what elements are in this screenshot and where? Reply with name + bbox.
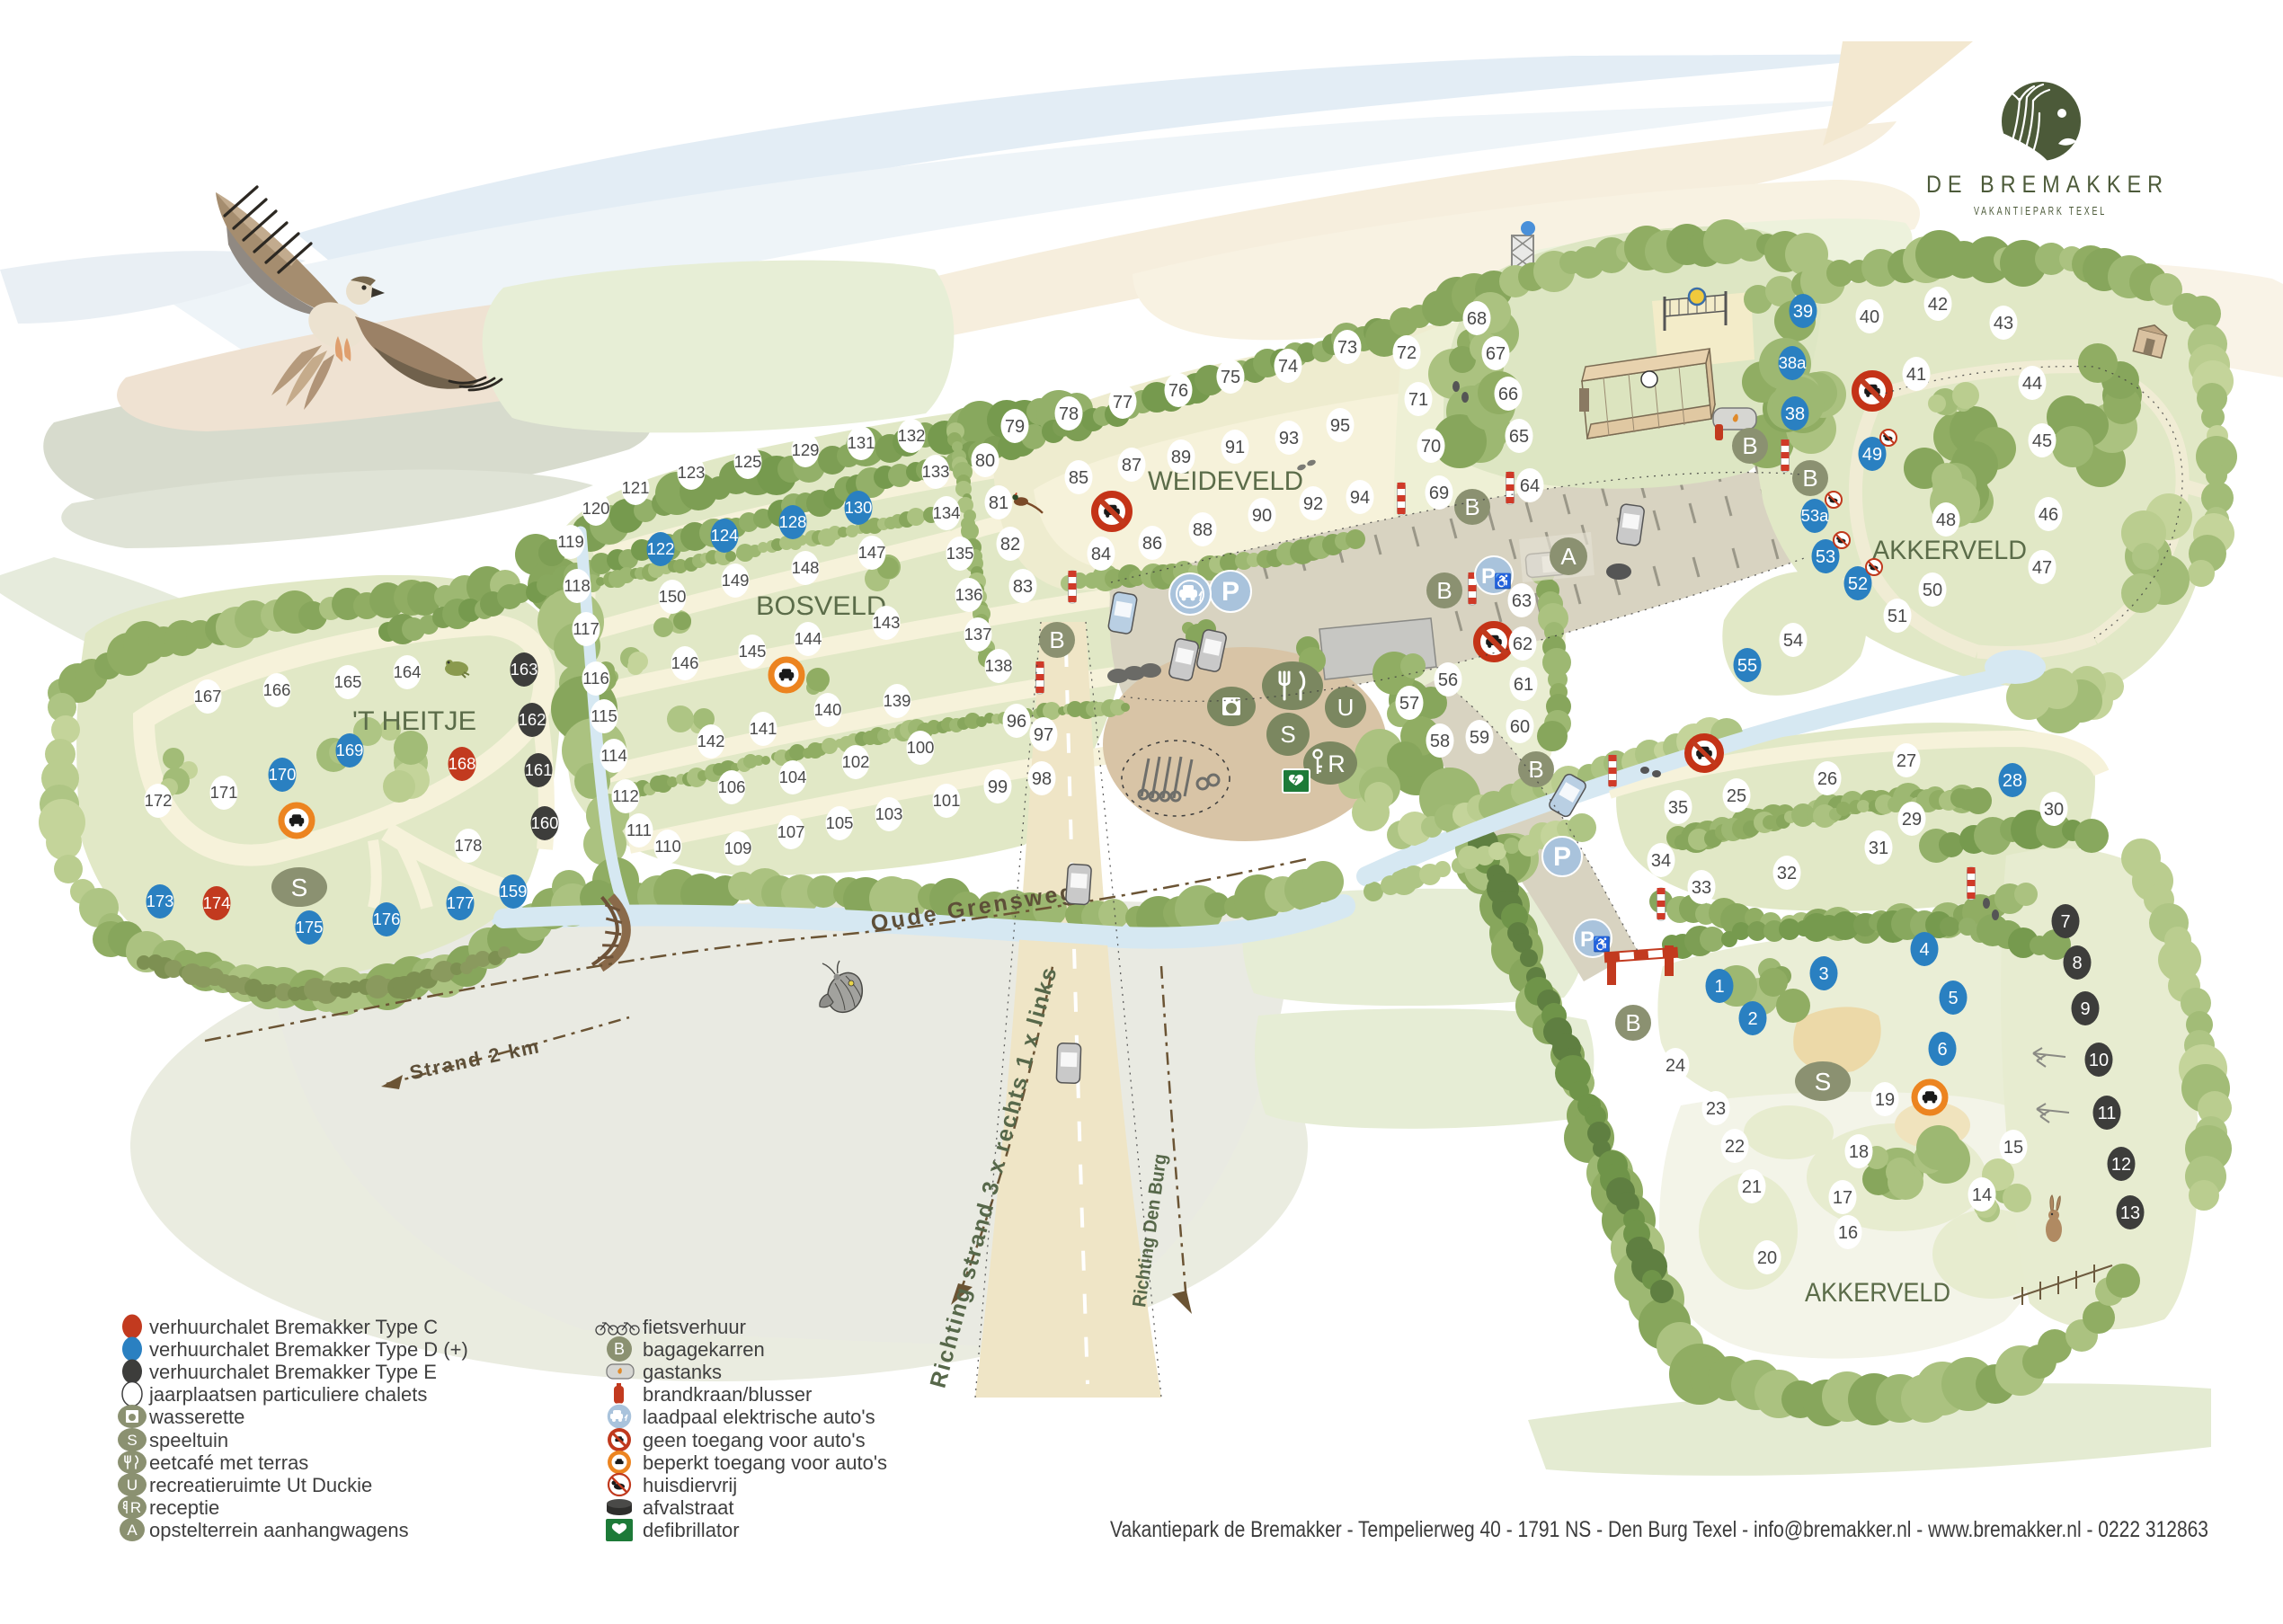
- svg-text:107: 107: [777, 822, 805, 841]
- svg-text:52: 52: [1848, 574, 1868, 594]
- svg-text:163: 163: [511, 660, 538, 679]
- svg-text:S: S: [1815, 1068, 1832, 1096]
- svg-text:106: 106: [718, 777, 746, 796]
- svg-text:103: 103: [875, 804, 903, 823]
- svg-text:46: 46: [2039, 505, 2058, 525]
- svg-text:48: 48: [1936, 510, 1956, 530]
- svg-text:eetcafé met terras: eetcafé met terras: [149, 1451, 308, 1474]
- svg-text:58: 58: [1430, 732, 1450, 751]
- svg-text:175: 175: [296, 918, 324, 936]
- svg-text:11: 11: [2098, 1104, 2117, 1123]
- svg-text:20: 20: [1757, 1248, 1777, 1268]
- svg-text:55: 55: [1737, 656, 1757, 676]
- svg-text:144: 144: [795, 629, 822, 648]
- svg-text:VAKANTIEPARK TEXEL: VAKANTIEPARK TEXEL: [1974, 204, 2107, 217]
- svg-text:132: 132: [898, 426, 926, 445]
- svg-text:28: 28: [2003, 771, 2022, 791]
- svg-text:23: 23: [1706, 1099, 1726, 1119]
- svg-text:43: 43: [1994, 314, 2013, 333]
- svg-text:71: 71: [1408, 390, 1428, 410]
- svg-text:61: 61: [1514, 675, 1533, 695]
- svg-text:B: B: [614, 1340, 625, 1358]
- svg-text:134: 134: [933, 503, 961, 522]
- svg-text:137: 137: [964, 625, 992, 643]
- svg-text:♿: ♿: [1593, 936, 1611, 953]
- svg-text:72: 72: [1397, 343, 1417, 363]
- svg-text:41: 41: [1906, 365, 1926, 385]
- svg-text:169: 169: [336, 741, 364, 759]
- svg-text:B: B: [1742, 432, 1757, 459]
- svg-text:109: 109: [724, 839, 752, 857]
- svg-text:29: 29: [1902, 810, 1922, 830]
- svg-text:145: 145: [739, 642, 767, 661]
- svg-text:44: 44: [2022, 374, 2042, 394]
- svg-text:gastanks: gastanks: [643, 1361, 722, 1383]
- svg-text:wasserette: wasserette: [148, 1406, 244, 1428]
- svg-text:171: 171: [210, 783, 238, 802]
- svg-text:BOSVELD: BOSVELD: [756, 591, 886, 621]
- svg-text:148: 148: [792, 558, 820, 577]
- svg-text:101: 101: [933, 791, 961, 810]
- svg-text:95: 95: [1330, 416, 1350, 436]
- svg-text:124: 124: [711, 526, 739, 545]
- svg-text:49: 49: [1862, 445, 1882, 465]
- svg-text:128: 128: [779, 512, 807, 531]
- svg-text:P: P: [1221, 577, 1239, 607]
- svg-text:huisdiervrij: huisdiervrij: [643, 1474, 737, 1496]
- svg-text:62: 62: [1513, 635, 1532, 654]
- svg-text:54: 54: [1783, 631, 1803, 651]
- svg-text:64: 64: [1520, 476, 1540, 496]
- svg-text:67: 67: [1486, 344, 1506, 364]
- svg-text:bagagekarren: bagagekarren: [643, 1338, 765, 1361]
- svg-text:133: 133: [922, 462, 950, 481]
- svg-text:30: 30: [2044, 800, 2064, 820]
- svg-text:AKKERVELD: AKKERVELD: [1805, 1278, 1950, 1308]
- svg-text:110: 110: [654, 837, 681, 856]
- svg-text:94: 94: [1350, 488, 1370, 508]
- svg-text:AKKERVELD: AKKERVELD: [1872, 536, 2027, 565]
- svg-text:84: 84: [1091, 545, 1111, 564]
- svg-text:177: 177: [447, 893, 475, 912]
- svg-text:77: 77: [1113, 393, 1133, 413]
- svg-text:86: 86: [1142, 534, 1162, 554]
- svg-text:17: 17: [1833, 1188, 1852, 1208]
- svg-text:32: 32: [1777, 864, 1797, 883]
- svg-text:50: 50: [1923, 581, 1942, 600]
- svg-text:brandkraan/blusser: brandkraan/blusser: [643, 1383, 812, 1406]
- svg-text:74: 74: [1278, 357, 1298, 377]
- svg-text:105: 105: [826, 813, 854, 832]
- svg-text:76: 76: [1168, 381, 1188, 401]
- svg-text:172: 172: [145, 791, 173, 810]
- svg-text:4: 4: [1919, 940, 1929, 960]
- svg-text:22: 22: [1725, 1137, 1745, 1157]
- svg-text:115: 115: [591, 706, 617, 725]
- svg-text:68: 68: [1467, 309, 1487, 329]
- svg-text:111: 111: [626, 821, 652, 839]
- svg-text:afvalstraat: afvalstraat: [643, 1496, 734, 1519]
- svg-text:160: 160: [531, 813, 559, 832]
- svg-text:19: 19: [1875, 1090, 1895, 1110]
- svg-text:S: S: [291, 874, 308, 901]
- svg-text:B: B: [1049, 626, 1064, 653]
- svg-text:speeltuin: speeltuin: [149, 1429, 228, 1451]
- svg-text:1: 1: [1714, 977, 1724, 997]
- svg-text:P: P: [1553, 842, 1571, 872]
- svg-text:159: 159: [500, 882, 528, 901]
- svg-text:9: 9: [2080, 999, 2090, 1019]
- svg-text:102: 102: [842, 752, 870, 771]
- svg-text:5: 5: [1948, 989, 1958, 1008]
- svg-text:83: 83: [1013, 577, 1033, 597]
- svg-text:U: U: [1337, 694, 1355, 721]
- svg-text:S: S: [127, 1432, 137, 1449]
- svg-text:38: 38: [1785, 404, 1805, 424]
- svg-text:26: 26: [1817, 769, 1837, 789]
- svg-text:136: 136: [955, 585, 983, 604]
- svg-text:42: 42: [1928, 295, 1948, 315]
- svg-text:A: A: [127, 1522, 138, 1539]
- svg-text:82: 82: [1000, 535, 1020, 555]
- svg-text:13: 13: [2120, 1203, 2140, 1223]
- svg-text:8: 8: [2072, 954, 2082, 973]
- svg-text:56: 56: [1438, 670, 1458, 690]
- svg-text:161: 161: [525, 760, 553, 779]
- svg-text:135: 135: [946, 544, 974, 563]
- svg-text:79: 79: [1005, 417, 1025, 437]
- svg-text:70: 70: [1421, 437, 1441, 457]
- svg-text:120: 120: [582, 499, 610, 518]
- svg-text:176: 176: [373, 910, 401, 928]
- svg-text:73: 73: [1337, 338, 1357, 358]
- svg-text:75: 75: [1221, 368, 1240, 387]
- svg-text:35: 35: [1668, 798, 1688, 818]
- svg-text:91: 91: [1225, 438, 1245, 457]
- svg-text:3: 3: [1818, 964, 1828, 984]
- svg-text:147: 147: [858, 543, 886, 562]
- svg-text:59: 59: [1470, 728, 1489, 748]
- svg-text:142: 142: [697, 732, 725, 750]
- svg-text:R: R: [1328, 750, 1346, 777]
- svg-text:31: 31: [1869, 839, 1888, 858]
- svg-text:2: 2: [1747, 1009, 1757, 1029]
- svg-text:117: 117: [573, 619, 600, 638]
- svg-text:131: 131: [848, 433, 875, 452]
- svg-text:60: 60: [1510, 717, 1530, 737]
- svg-text:10: 10: [2089, 1051, 2109, 1070]
- svg-text:beperkt toegang voor auto's: beperkt toegang voor auto's: [643, 1451, 887, 1474]
- svg-text:122: 122: [647, 539, 675, 558]
- svg-text:118: 118: [564, 576, 591, 595]
- svg-text:114: 114: [600, 746, 627, 765]
- svg-text:15: 15: [2003, 1138, 2023, 1158]
- svg-text:defibrillator: defibrillator: [643, 1519, 740, 1541]
- svg-text:164: 164: [394, 662, 422, 681]
- svg-text:A: A: [1560, 543, 1577, 570]
- svg-text:100: 100: [907, 738, 935, 757]
- svg-text:6: 6: [1937, 1040, 1947, 1060]
- svg-text:130: 130: [845, 498, 873, 517]
- svg-text:125: 125: [734, 452, 762, 471]
- svg-text:165: 165: [334, 672, 362, 691]
- svg-text:116: 116: [582, 669, 609, 688]
- svg-text:80: 80: [975, 451, 995, 471]
- svg-text:geen toegang voor auto's: geen toegang voor auto's: [643, 1429, 866, 1451]
- svg-text:138: 138: [985, 656, 1013, 675]
- svg-text:123: 123: [678, 463, 706, 482]
- svg-text:39: 39: [1793, 302, 1813, 322]
- svg-text:99: 99: [988, 777, 1008, 797]
- svg-text:87: 87: [1122, 456, 1141, 475]
- svg-text:104: 104: [779, 768, 807, 786]
- svg-text:verhuurchalet Bremakker Type E: verhuurchalet Bremakker Type E: [149, 1361, 437, 1383]
- svg-text:53: 53: [1816, 547, 1835, 567]
- svg-text:receptie: receptie: [149, 1496, 219, 1519]
- svg-text:18: 18: [1849, 1142, 1869, 1162]
- svg-text:89: 89: [1171, 448, 1191, 467]
- svg-text:33: 33: [1692, 878, 1711, 898]
- svg-text:119: 119: [557, 532, 584, 551]
- svg-text:S: S: [1280, 721, 1295, 748]
- svg-text:B: B: [1436, 577, 1452, 604]
- svg-text:166: 166: [263, 680, 291, 699]
- svg-text:12: 12: [2111, 1155, 2131, 1175]
- svg-text:fietsverhuur: fietsverhuur: [643, 1316, 746, 1338]
- svg-text:B: B: [1464, 493, 1479, 520]
- svg-text:121: 121: [622, 478, 650, 497]
- svg-text:85: 85: [1069, 468, 1088, 488]
- svg-text:146: 146: [671, 653, 699, 672]
- svg-text:143: 143: [873, 613, 901, 632]
- svg-text:21: 21: [1742, 1177, 1762, 1197]
- svg-text:DE BREMAKKER: DE BREMAKKER: [1926, 171, 2169, 198]
- svg-text:B: B: [1625, 1009, 1640, 1036]
- svg-text:24: 24: [1666, 1056, 1685, 1076]
- svg-text:88: 88: [1193, 520, 1213, 540]
- svg-text:139: 139: [884, 691, 911, 710]
- svg-text:170: 170: [269, 765, 297, 784]
- svg-text:92: 92: [1303, 494, 1323, 514]
- svg-text:U: U: [127, 1477, 138, 1494]
- svg-text:96: 96: [1007, 712, 1026, 732]
- svg-text:149: 149: [722, 571, 750, 590]
- svg-text:38a: 38a: [1779, 353, 1808, 372]
- svg-text:opstelterrein aanhangwagens: opstelterrein aanhangwagens: [149, 1519, 409, 1541]
- svg-text:150: 150: [659, 587, 687, 606]
- svg-text:112: 112: [612, 786, 639, 805]
- svg-text:66: 66: [1498, 385, 1518, 404]
- svg-text:Vakantiepark de Bremakker - Te: Vakantiepark de Bremakker - Tempelierweg…: [1110, 1517, 2208, 1542]
- svg-text:verhuurchalet Bremakker Type D: verhuurchalet Bremakker Type D (+): [149, 1338, 468, 1361]
- svg-text:R: R: [130, 1499, 141, 1516]
- svg-text:25: 25: [1727, 786, 1746, 806]
- svg-text:78: 78: [1059, 404, 1079, 424]
- svg-text:'T HEITJE: 'T HEITJE: [352, 706, 476, 736]
- svg-text:B: B: [1528, 756, 1543, 783]
- svg-text:51: 51: [1888, 607, 1907, 626]
- svg-text:129: 129: [792, 440, 820, 459]
- svg-text:168: 168: [449, 754, 476, 773]
- svg-text:140: 140: [814, 700, 842, 719]
- svg-text:laadpaal elektrische auto's: laadpaal elektrische auto's: [643, 1406, 875, 1428]
- svg-text:45: 45: [2032, 431, 2052, 451]
- svg-text:♿: ♿: [1494, 572, 1512, 590]
- svg-text:90: 90: [1252, 506, 1272, 526]
- svg-text:7: 7: [2060, 912, 2070, 932]
- svg-text:178: 178: [455, 836, 483, 855]
- svg-text:B: B: [1802, 465, 1817, 492]
- svg-text:jaarplaatsen particuliere chal: jaarplaatsen particuliere chalets: [148, 1383, 427, 1406]
- svg-text:14: 14: [1972, 1185, 1992, 1205]
- svg-text:141: 141: [750, 719, 777, 738]
- svg-text:verhuurchalet Bremakker Type C: verhuurchalet Bremakker Type C: [149, 1316, 438, 1338]
- svg-text:57: 57: [1399, 694, 1419, 714]
- svg-text:98: 98: [1032, 769, 1052, 789]
- svg-text:27: 27: [1897, 751, 1916, 771]
- svg-text:81: 81: [989, 493, 1008, 513]
- svg-text:69: 69: [1429, 484, 1449, 503]
- svg-text:173: 173: [147, 892, 174, 910]
- svg-text:40: 40: [1860, 307, 1879, 327]
- svg-text:93: 93: [1279, 429, 1299, 448]
- svg-text:recreatieruimte Ut Duckie: recreatieruimte Ut Duckie: [149, 1474, 372, 1496]
- svg-text:167: 167: [194, 687, 222, 706]
- svg-text:16: 16: [1838, 1223, 1858, 1243]
- svg-text:174: 174: [203, 893, 231, 912]
- svg-text:47: 47: [2032, 558, 2052, 578]
- svg-text:53a: 53a: [1801, 506, 1830, 525]
- svg-text:63: 63: [1512, 591, 1532, 611]
- svg-text:97: 97: [1034, 725, 1053, 745]
- svg-text:162: 162: [519, 710, 546, 729]
- svg-text:34: 34: [1651, 851, 1671, 871]
- svg-text:65: 65: [1509, 427, 1529, 447]
- svg-text:WEIDEVELD: WEIDEVELD: [1148, 466, 1303, 496]
